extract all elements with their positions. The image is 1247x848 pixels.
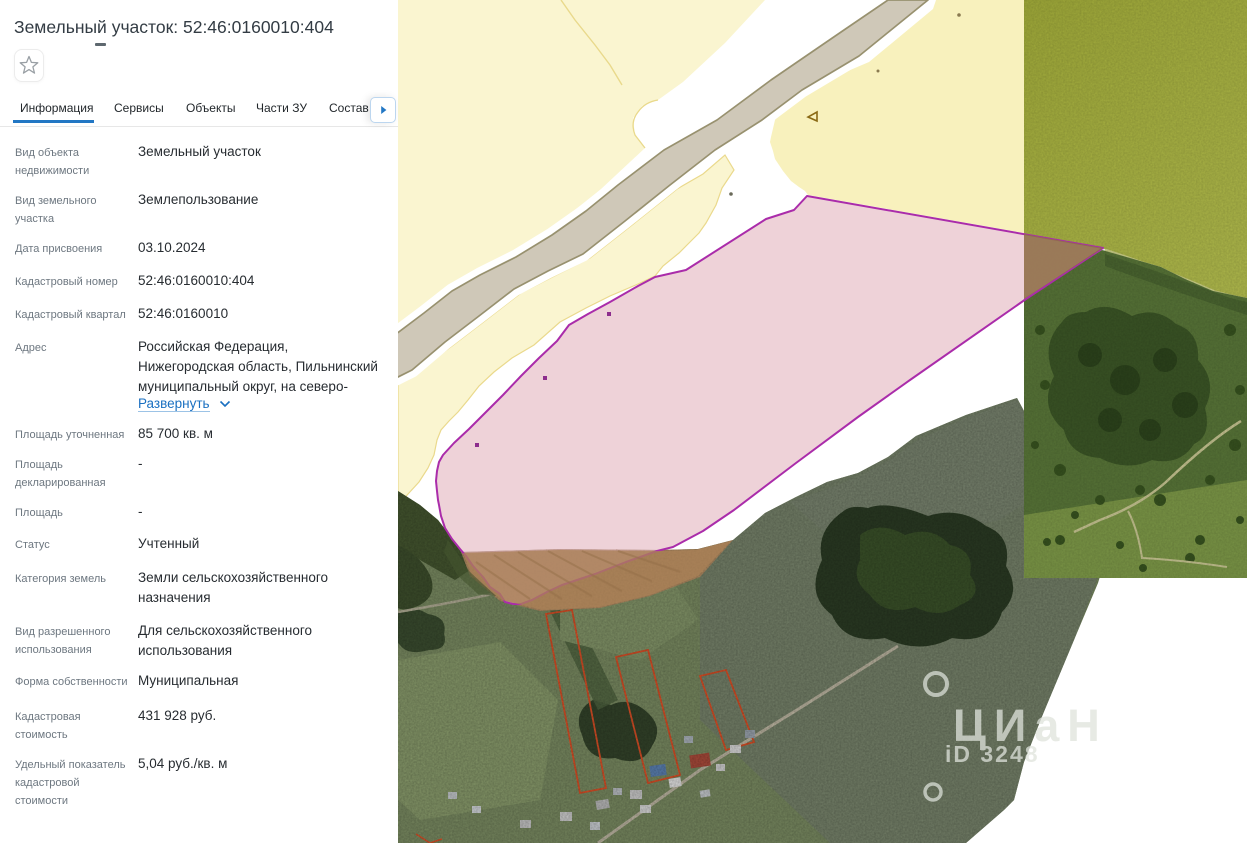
svg-text:iD 3248: iD 3248	[945, 741, 1040, 767]
